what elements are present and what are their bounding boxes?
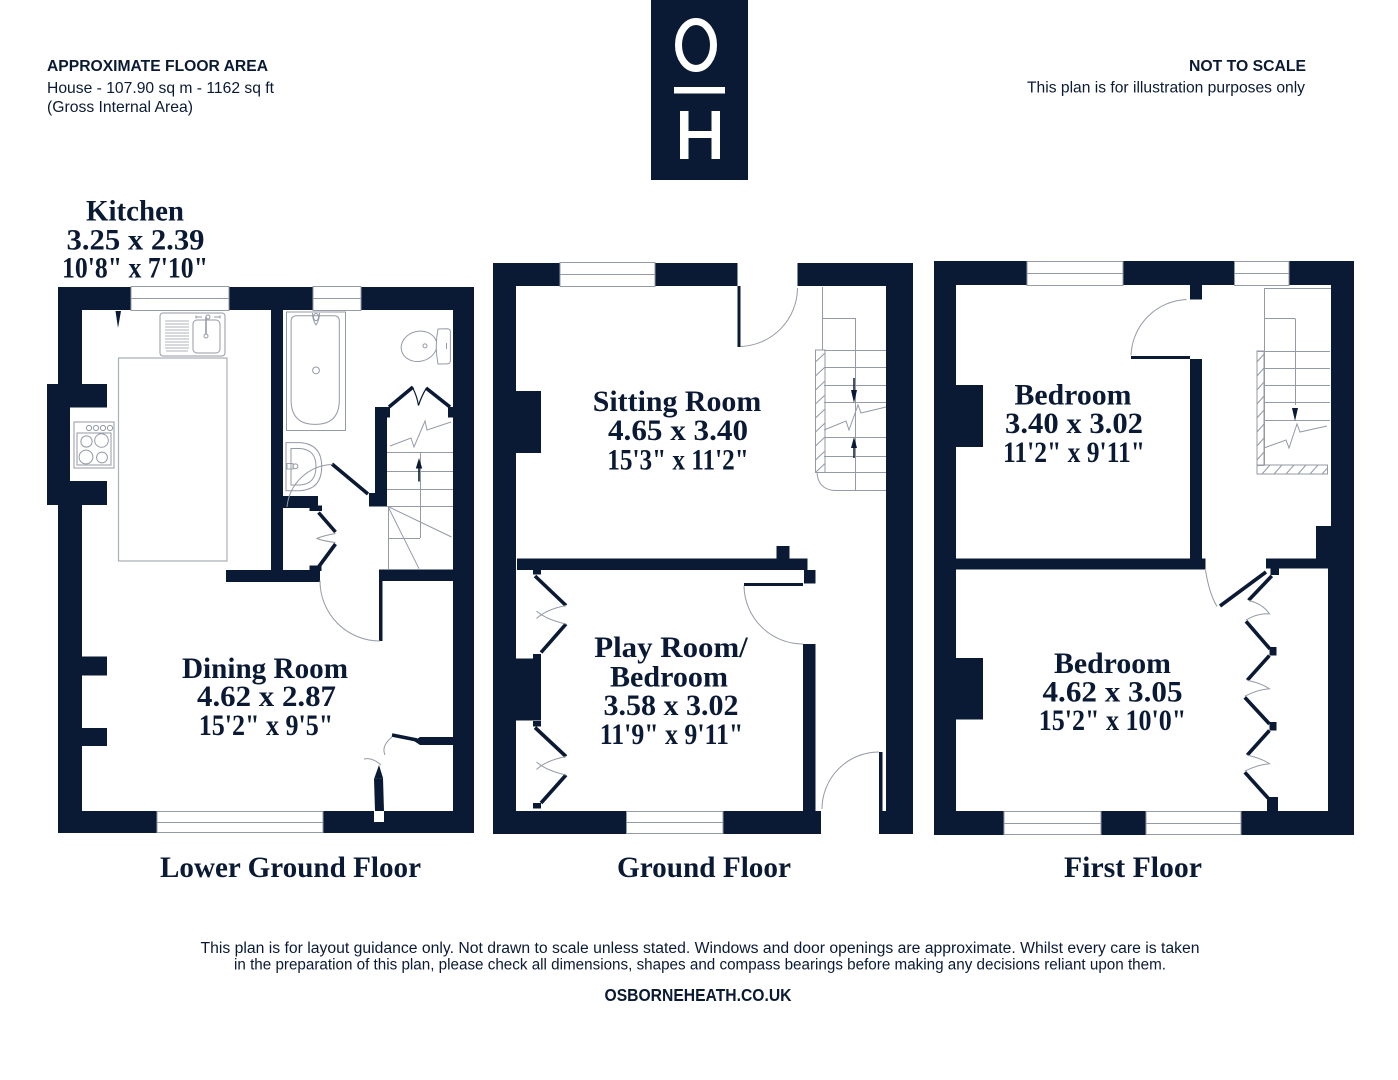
- svg-text:(Gross Internal Area): (Gross Internal Area): [47, 99, 193, 116]
- svg-text:NOT TO SCALE: NOT TO SCALE: [1189, 58, 1306, 75]
- svg-text:House - 107.90 sq m - 1162 sq: House - 107.90 sq m - 1162 sq ft: [47, 80, 275, 97]
- svg-text:in the preparation of this pla: in the preparation of this plan, please …: [234, 957, 1166, 974]
- svg-text:Play Room/: Play Room/: [594, 631, 748, 664]
- svg-text:10'8" x 7'10": 10'8" x 7'10": [62, 252, 208, 285]
- svg-text:11'9" x 9'11": 11'9" x 9'11": [600, 718, 744, 751]
- svg-text:Lower Ground Floor: Lower Ground Floor: [160, 851, 421, 884]
- svg-text:11'2" x 9'11": 11'2" x 9'11": [1003, 436, 1145, 469]
- svg-text:4.65 x 3.40: 4.65 x 3.40: [608, 414, 748, 447]
- svg-text:APPROXIMATE FLOOR AREA: APPROXIMATE FLOOR AREA: [47, 58, 268, 75]
- svg-text:Ground Floor: Ground Floor: [617, 851, 791, 884]
- svg-text:15'3" x 11'2": 15'3" x 11'2": [607, 444, 749, 477]
- svg-text:15'2" x 9'5": 15'2" x 9'5": [199, 709, 334, 742]
- svg-text:This plan is for layout guidan: This plan is for layout guidance only. N…: [201, 940, 1200, 957]
- svg-text:First Floor: First Floor: [1064, 851, 1202, 884]
- svg-text:15'2" x 10'0": 15'2" x 10'0": [1039, 704, 1187, 737]
- svg-text:This plan is for illustration: This plan is for illustration purposes o…: [1027, 80, 1305, 97]
- svg-text:OSBORNEHEATH.CO.UK: OSBORNEHEATH.CO.UK: [605, 985, 792, 1005]
